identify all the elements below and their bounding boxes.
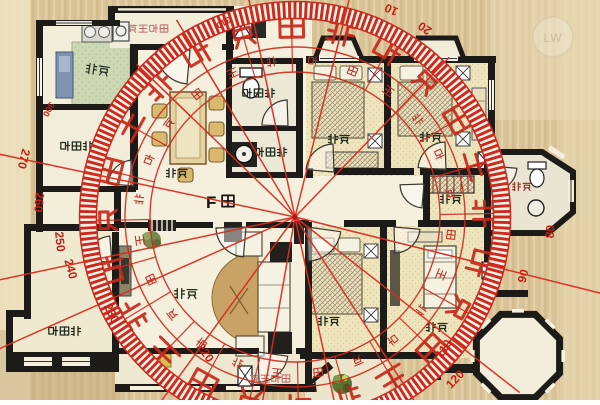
- svg-text:F: F: [206, 193, 216, 212]
- svg-text:250: 250: [52, 231, 68, 253]
- svg-text:80: 80: [543, 224, 558, 239]
- svg-text:260: 260: [31, 192, 46, 213]
- svg-text:LW: LW: [543, 31, 562, 45]
